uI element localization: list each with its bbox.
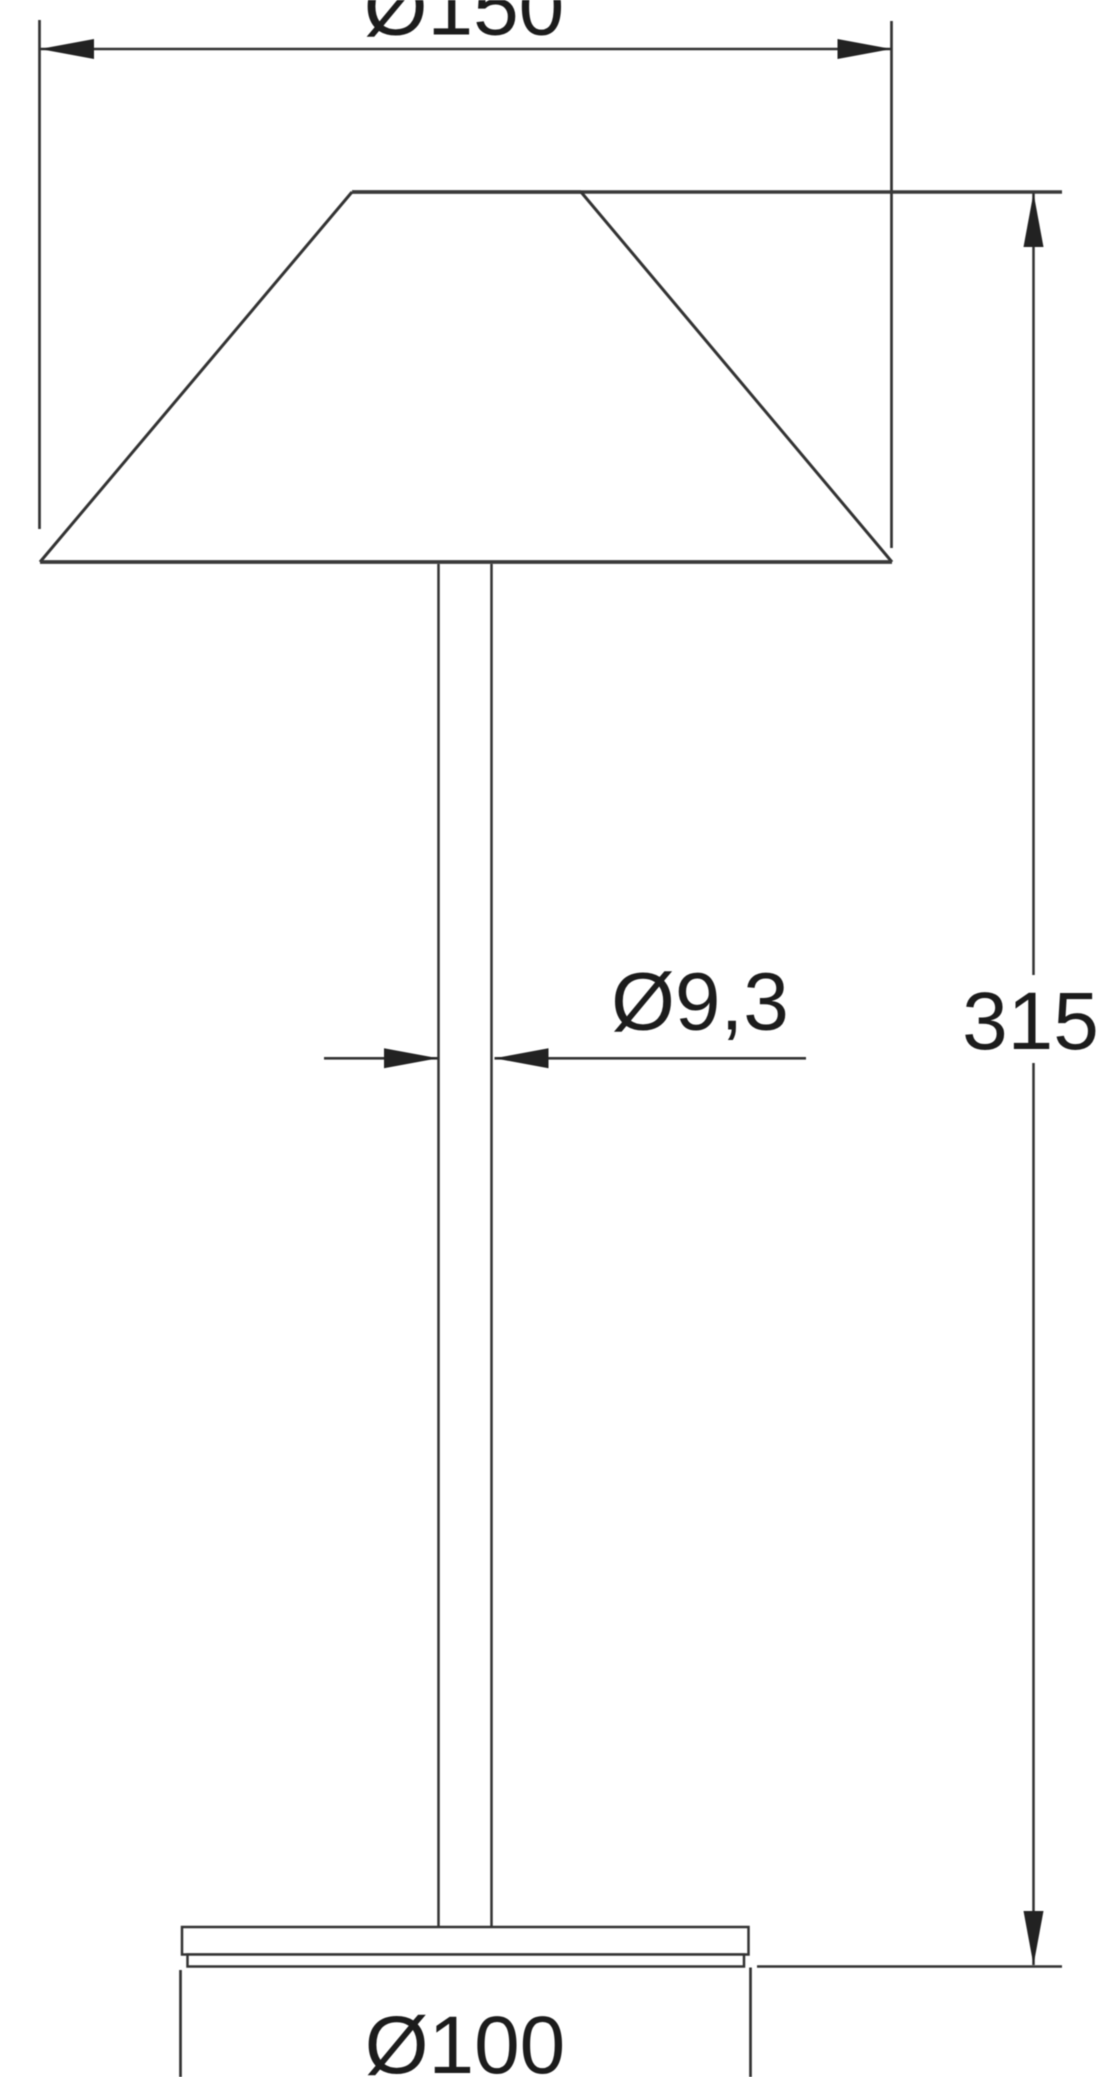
svg-text:Ø150: Ø150 [364, 0, 565, 53]
svg-text:Ø9,3: Ø9,3 [611, 957, 789, 1048]
svg-text:Ø100: Ø100 [365, 2000, 566, 2077]
svg-text:315: 315 [962, 976, 1099, 1067]
